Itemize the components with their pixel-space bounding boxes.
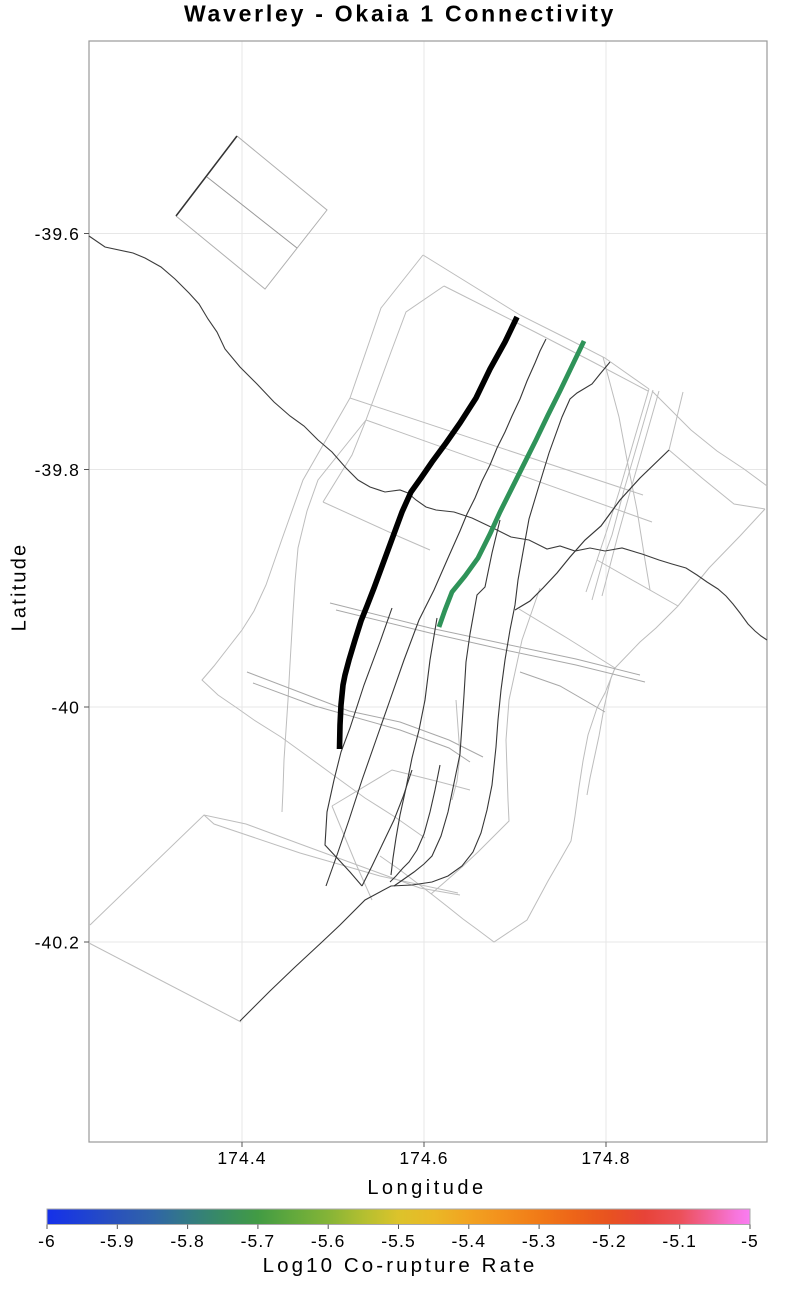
svg-text:-5.7: -5.7	[241, 1231, 276, 1251]
svg-text:Longitude: Longitude	[367, 1177, 486, 1199]
svg-text:-39.6: -39.6	[35, 224, 80, 244]
svg-text:-5.1: -5.1	[662, 1231, 697, 1251]
svg-text:174.8: 174.8	[581, 1148, 630, 1168]
svg-text:-5.8: -5.8	[170, 1231, 205, 1251]
svg-text:-5.5: -5.5	[381, 1231, 416, 1251]
svg-text:-5.3: -5.3	[522, 1231, 557, 1251]
svg-text:-40.2: -40.2	[35, 933, 80, 953]
svg-text:Latitude: Latitude	[9, 543, 31, 632]
svg-text:-5.2: -5.2	[592, 1231, 627, 1251]
svg-text:Waverley - Okaia 1 Connectivit: Waverley - Okaia 1 Connectivity	[184, 1, 616, 27]
svg-text:-6: -6	[38, 1231, 56, 1251]
svg-text:-5: -5	[741, 1231, 759, 1251]
svg-text:Log10 Co-rupture Rate: Log10 Co-rupture Rate	[263, 1254, 538, 1277]
svg-text:174.6: 174.6	[399, 1148, 448, 1168]
svg-text:-5.6: -5.6	[311, 1231, 346, 1251]
svg-text:-39.8: -39.8	[35, 460, 80, 480]
svg-text:-5.9: -5.9	[100, 1231, 135, 1251]
svg-text:-5.4: -5.4	[452, 1231, 487, 1251]
svg-text:-40: -40	[51, 698, 80, 718]
svg-text:174.4: 174.4	[217, 1148, 266, 1168]
